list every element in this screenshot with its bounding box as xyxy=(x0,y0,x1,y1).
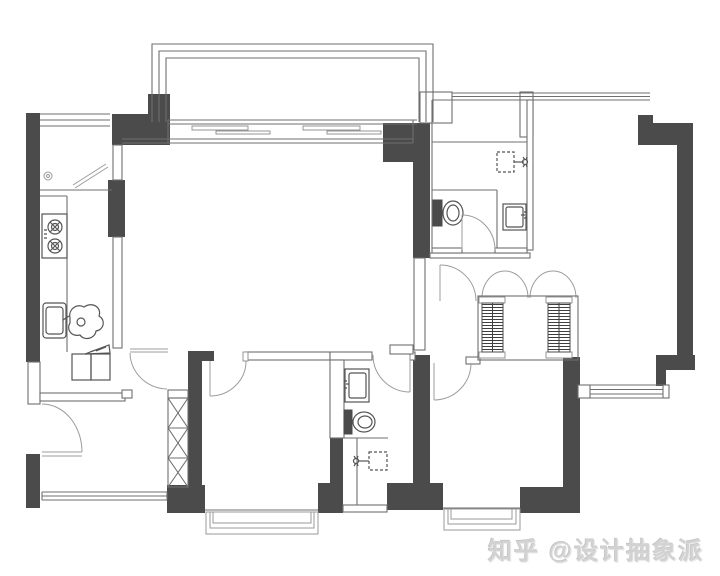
wall xyxy=(108,180,125,237)
top-window xyxy=(452,93,650,100)
utility-window xyxy=(40,114,110,126)
top-balcony xyxy=(152,44,433,122)
frame-line xyxy=(168,120,417,124)
door-swing-arc xyxy=(462,215,495,250)
door-frame xyxy=(243,352,248,361)
refrigerator-icon xyxy=(91,354,110,380)
sliding-panel xyxy=(192,126,248,130)
wardrobe-cap xyxy=(479,352,505,358)
balcony-outline xyxy=(152,44,433,122)
wall xyxy=(520,487,580,513)
stove-knobs xyxy=(44,230,47,238)
door-leaf xyxy=(42,452,82,456)
shared-bathroom xyxy=(343,355,410,505)
door-leaf xyxy=(130,349,168,352)
wall xyxy=(387,483,443,510)
master-bottom-window xyxy=(590,385,663,398)
wall-stub xyxy=(122,390,132,398)
wardrobe-cap xyxy=(546,352,572,358)
door-swing-arc xyxy=(130,353,167,389)
wall xyxy=(413,123,430,258)
balcony-outline xyxy=(166,58,419,122)
wall-stub xyxy=(28,362,40,404)
wall xyxy=(26,454,40,508)
sliding-panel xyxy=(327,131,381,134)
wall xyxy=(638,115,653,145)
door-swing-arc xyxy=(373,355,410,392)
window-pier xyxy=(663,385,669,398)
wall-stub xyxy=(330,352,372,360)
refrigerator-icon xyxy=(72,354,91,380)
vent-shaft-hatch xyxy=(168,398,188,487)
wall-stub xyxy=(414,258,425,350)
door-swing-arc xyxy=(210,361,246,396)
entry-hall xyxy=(42,349,188,487)
wall xyxy=(188,361,202,487)
toilet-bowl-inner xyxy=(358,416,372,428)
window-pier xyxy=(578,385,590,398)
sliding-panel xyxy=(303,126,360,130)
wall-stub xyxy=(432,248,462,253)
decor-figure xyxy=(69,305,104,339)
shower-head-icon xyxy=(354,459,359,464)
bay-window xyxy=(451,509,512,519)
shower-partition xyxy=(343,438,388,505)
bay-window xyxy=(448,509,516,524)
wall-stub xyxy=(246,352,330,360)
fridge-door-hatch xyxy=(85,345,110,354)
wall-stub xyxy=(168,390,188,398)
folding-door xyxy=(73,164,108,188)
closet-door-arc xyxy=(530,271,576,298)
floor-plan-canvas: 知乎 @设计抽象派 xyxy=(0,0,720,576)
shower-tray xyxy=(369,452,387,470)
wall xyxy=(167,485,205,513)
wall xyxy=(413,355,430,485)
wardrobe-cap xyxy=(479,297,505,303)
closet-area xyxy=(440,265,578,360)
kitchen xyxy=(40,164,112,380)
shower-tray xyxy=(497,152,514,172)
floor-drain-icon xyxy=(44,172,52,180)
bay-window xyxy=(210,512,314,528)
wall-stub xyxy=(113,145,122,180)
sliding-panel xyxy=(216,131,270,134)
wall-stub xyxy=(495,248,527,253)
window-sill xyxy=(343,505,387,512)
wall xyxy=(330,438,343,485)
basin-icon xyxy=(506,207,523,227)
toilet-bowl-inner xyxy=(447,205,459,221)
entry-railing xyxy=(42,492,167,500)
watermark: 知乎 @设计抽象派 xyxy=(488,531,704,566)
wall xyxy=(188,351,214,361)
wall xyxy=(656,369,666,386)
wall-stub xyxy=(527,100,533,250)
wall-stub xyxy=(330,360,344,438)
floor-plan-drawing xyxy=(0,0,720,576)
wall xyxy=(656,355,695,370)
wall xyxy=(318,483,343,513)
wall-stub xyxy=(113,237,122,348)
wall xyxy=(677,145,693,357)
toilet-tank xyxy=(344,410,352,434)
wardrobe-cap xyxy=(546,297,572,303)
decor-figure-detail xyxy=(77,318,85,326)
wall-stub xyxy=(390,345,413,354)
pier xyxy=(420,92,452,123)
door-swing-arc xyxy=(42,404,82,452)
toilet-tank xyxy=(433,200,442,226)
wall-stub xyxy=(430,253,530,258)
wall-stub xyxy=(40,393,125,401)
balcony-outline xyxy=(159,51,426,122)
basin-icon xyxy=(349,373,366,398)
wall xyxy=(26,113,40,362)
wall xyxy=(112,114,170,145)
wall xyxy=(652,123,693,145)
sink-basin xyxy=(46,307,63,334)
bay-window xyxy=(213,512,311,523)
closet-door-arc xyxy=(482,271,528,298)
door-swing-arc xyxy=(434,363,471,400)
floor-drain-icon xyxy=(47,175,50,178)
door-swing-arc xyxy=(440,265,476,301)
load-bearing-walls xyxy=(26,94,695,513)
